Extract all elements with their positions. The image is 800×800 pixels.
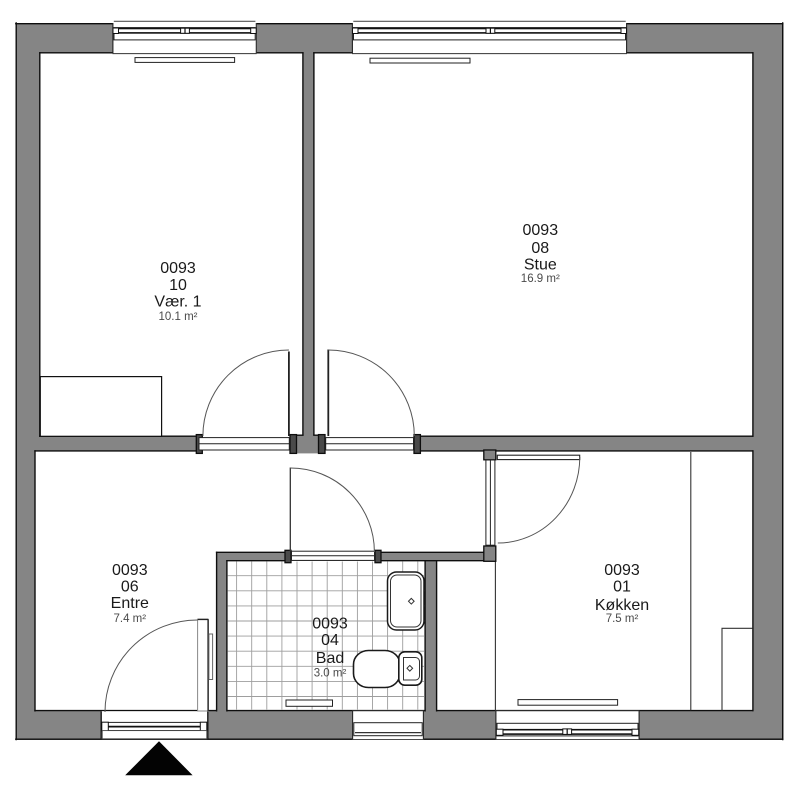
svg-text:Entre: Entre xyxy=(111,595,149,612)
svg-text:Bad: Bad xyxy=(316,650,344,667)
svg-text:7.4 m²: 7.4 m² xyxy=(114,613,147,625)
svg-text:0093: 0093 xyxy=(160,260,196,277)
svg-text:01: 01 xyxy=(613,578,631,595)
svg-text:16.9 m²: 16.9 m² xyxy=(521,273,560,285)
svg-text:Stue: Stue xyxy=(524,257,557,274)
svg-text:0093: 0093 xyxy=(604,562,640,579)
svg-text:10: 10 xyxy=(169,277,187,294)
svg-text:10.1 m²: 10.1 m² xyxy=(159,311,198,323)
svg-text:Vær. 1: Vær. 1 xyxy=(154,293,201,310)
svg-text:3.0 m²: 3.0 m² xyxy=(314,668,347,680)
svg-text:0093: 0093 xyxy=(312,616,348,633)
svg-text:Køkken: Køkken xyxy=(595,597,649,614)
svg-text:7.5 m²: 7.5 m² xyxy=(606,613,639,625)
svg-text:08: 08 xyxy=(531,240,549,257)
svg-text:0093: 0093 xyxy=(112,562,148,579)
svg-text:06: 06 xyxy=(121,578,139,595)
svg-text:04: 04 xyxy=(321,632,339,649)
svg-text:0093: 0093 xyxy=(523,222,559,239)
